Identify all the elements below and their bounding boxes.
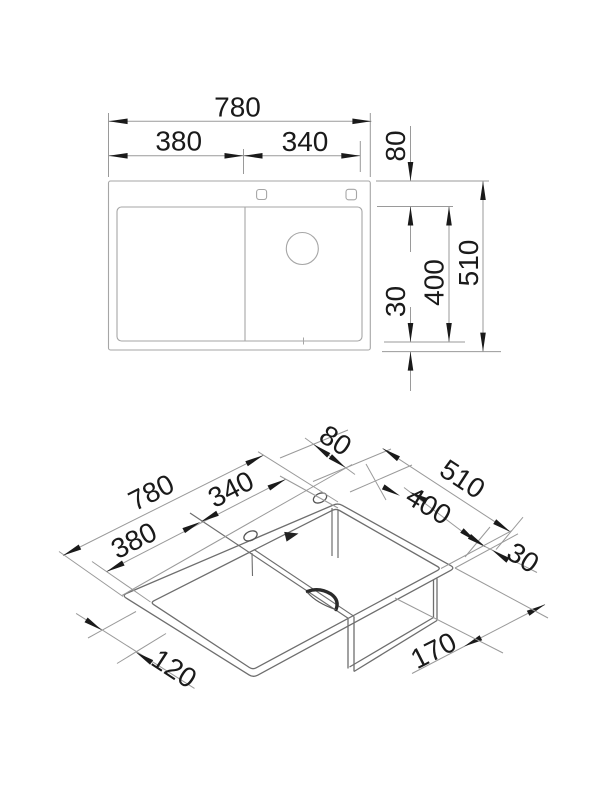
svg-text:400: 400 [419,259,450,306]
svg-text:510: 510 [453,240,484,287]
svg-text:380: 380 [155,126,202,157]
svg-text:30: 30 [380,286,411,317]
svg-text:340: 340 [282,126,329,157]
svg-text:780: 780 [214,92,261,123]
svg-text:80: 80 [380,130,411,161]
